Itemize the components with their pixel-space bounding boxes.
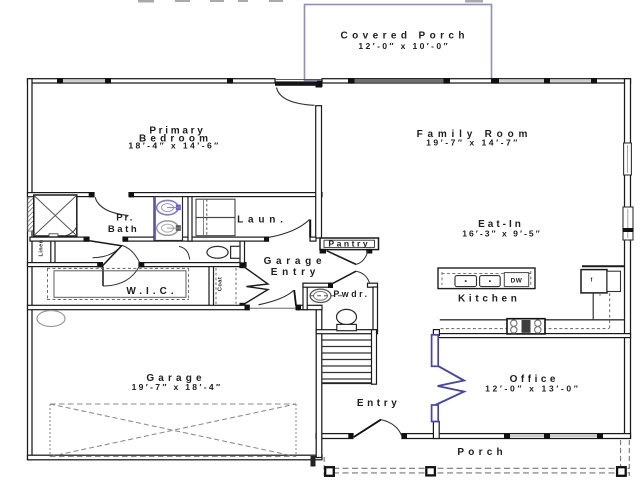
svg-text:19′-7″ x 14′-7″: 19′-7″ x 14′-7″ (426, 137, 520, 147)
svg-text:Laun.: Laun. (237, 214, 288, 225)
svg-text:Garage: Garage (264, 256, 327, 267)
svg-text:18′-4″ x 14′-6″: 18′-4″ x 14′-6″ (128, 140, 220, 150)
svg-text:12′-0″ x 10′-0″: 12′-0″ x 10′-0″ (358, 41, 450, 51)
svg-text:Pantry: Pantry (328, 239, 370, 249)
svg-text:19′-7″ x 18′-4″: 19′-7″ x 18′-4″ (132, 382, 223, 392)
svg-text:Kitchen: Kitchen (458, 293, 521, 304)
svg-text:Pwdr.: Pwdr. (333, 289, 369, 299)
svg-text:Entry: Entry (271, 267, 320, 278)
svg-text:Pr.: Pr. (116, 212, 134, 223)
svg-text:Linen: Linen (39, 239, 45, 256)
svg-text:W.I.C.: W.I.C. (126, 286, 177, 297)
svg-text:16′-3″ x 9′-5″: 16′-3″ x 9′-5″ (462, 229, 542, 239)
svg-text:12′-0″ x 13′-0″: 12′-0″ x 13′-0″ (485, 384, 580, 394)
svg-text:DW: DW (511, 277, 523, 284)
svg-text:Coat: Coat (218, 277, 224, 291)
svg-text:f: f (591, 278, 593, 284)
svg-text:Bath: Bath (108, 224, 140, 235)
svg-text:Entry: Entry (357, 398, 401, 409)
svg-text:Porch: Porch (457, 447, 506, 458)
